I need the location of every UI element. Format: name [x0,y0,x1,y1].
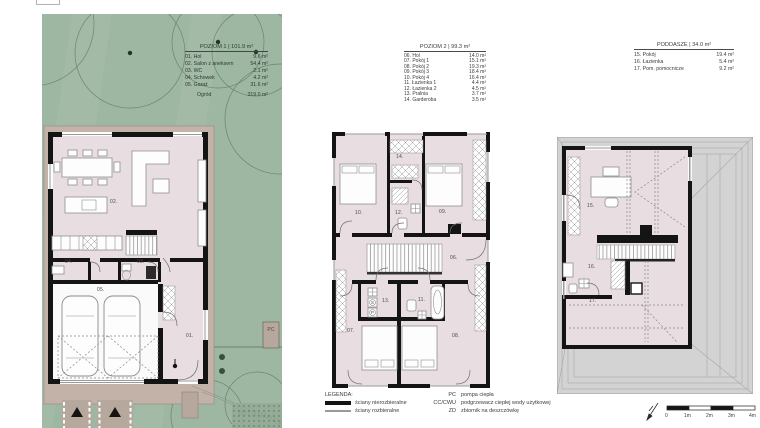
scale-tick: 3m [728,413,735,419]
bush [219,368,225,374]
room-mark-12: 12. [395,211,403,216]
wardrobe [568,157,580,235]
schedule-row: 03. WC2.1 m² [185,68,268,75]
room-mark-17: 17. [589,299,597,304]
solid-wall-swatch [325,401,351,405]
legend-block: LEGENDA: ściany nierozbieralne ściany ro… [325,391,407,416]
monitor [603,167,619,176]
schedule-level1-title: POZIOM 1 | 101.9 m² [185,44,268,52]
shelf-unit [198,210,206,246]
legend-wall-row: ściany nierozbieralne [325,399,407,407]
scale-tick: 4m [749,413,756,419]
schedule-row: 15. Pokój19.4 m² [634,52,734,59]
abbr-row: PCpompa ciepła [408,391,551,399]
scale-tick: 0 [665,413,668,419]
schedule-level2: POZIOM 2 | 99.3 m² 06. Hol14.0 m² 07. Po… [404,44,486,103]
shower [392,188,408,204]
schedule-row: 05. Garaż31.6 m² [185,82,268,89]
legend-abbreviations: PCpompa ciepła CC/CWUpodgrzewacz ciepłej… [408,391,551,416]
bush [219,354,225,360]
room-mark-03: 03. [137,260,145,265]
schedule-row: 02. Salon z aneksem54.4 m² [185,61,268,68]
heat-pump-label: PC [263,328,279,333]
room-mark-14: 14. [396,155,404,160]
tv-cabinet [198,160,206,202]
room-mark-04: 04. [65,260,73,265]
legend-title: LEGENDA: [325,391,407,399]
boiler-unit [146,266,156,279]
schedule-level2-title: POZIOM 2 | 99.3 m² [404,44,486,52]
dining-table [62,158,112,177]
scale-tick: 1m [684,413,691,419]
room-mark-01: 01. [186,334,194,339]
room-mark-16: 16. [588,265,596,270]
schedule-attic: PODDASZE | 34.0 m² 15. Pokój19.4 m² 16. … [634,42,734,73]
abbr-row: CC/CWUpodgrzewacz ciepłej wody użytkowej [408,399,551,407]
dryer-mark: S [369,300,376,305]
shower [611,261,625,289]
room-mark-06: 06. [450,256,458,261]
desk [591,177,631,197]
abbr-row: ZDzbiornik na deszczówkę [408,407,551,415]
room-mark-11: 11. [418,298,425,303]
light-wall-swatch [325,410,351,413]
legend-wall-row: ściany rozbieralne [325,407,407,415]
schedule-row: 14. Garderoba3.5 m² [404,98,486,103]
toilet [569,284,577,293]
washbasin-cabinet [563,263,573,277]
schedule-row: 04. Schowek4.2 m² [185,75,268,82]
chair [605,198,618,207]
washer-mark: P [369,310,376,315]
scale-segments [667,406,755,410]
duct-box [631,283,642,294]
heat-pump-pad [263,322,279,348]
level2-drawing [332,132,490,388]
room-mark-02: 02. [110,200,118,205]
ottoman [153,179,169,193]
room-mark-08: 08. [452,334,460,339]
room-mark-05: 05. [97,288,105,293]
storage-shelf [52,266,64,274]
schedule-level1: POZIOM 1 | 101.9 m² 01. Hol9.6 m² 02. Sa… [185,44,268,98]
gravel-patch [232,403,282,428]
stairs [367,244,442,272]
room-mark-09: 09. [439,210,447,215]
kitchen-island [65,197,107,213]
walk-pad [182,392,198,418]
room-mark-10: 10. [355,211,363,216]
clipped-sheet-fragment [36,0,60,5]
schedule-row: 17. Pom. pomocnicze9.2 m² [634,66,734,73]
north-mark [647,403,658,420]
room-mark-15: 15. [587,204,595,209]
scale-bar-drawing [644,400,756,424]
attic-drawing [557,137,753,394]
cooktop [83,236,97,250]
schedule-row: 16. Łazienka5.4 m² [634,59,734,66]
room-mark-13: 13. [382,299,390,304]
floor-plan-sheet: 02. 03. 04. 05. 01. PC 14. 10. 12. 09. 0… [0,0,760,428]
schedule-row: 01. Hol9.6 m² [185,54,268,61]
schedule-attic-title: PODDASZE | 34.0 m² [634,42,734,50]
stairs [597,245,675,259]
room-mark-07: 07. [347,329,355,334]
garden-area-row: Ogród319.0 m² [185,92,268,99]
house-ground-floor [44,126,214,404]
stairs-ground [126,236,157,255]
scale-tick: 2m [706,413,713,419]
